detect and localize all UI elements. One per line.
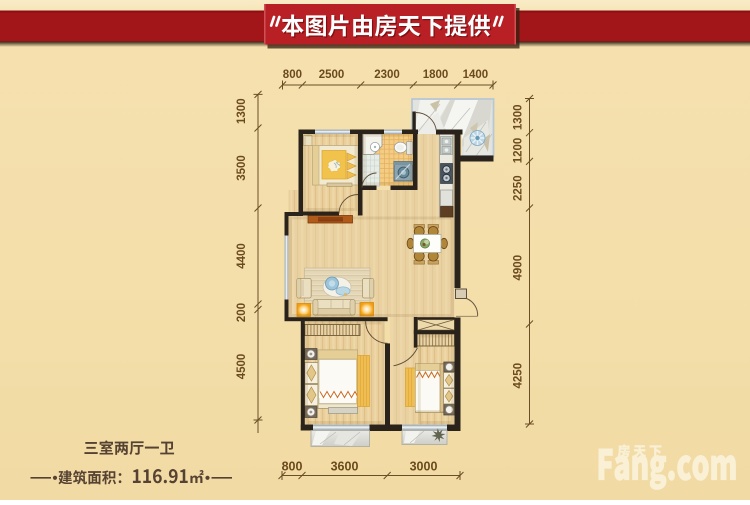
svg-text:1300: 1300	[236, 98, 248, 124]
svg-text:2500: 2500	[319, 69, 345, 81]
svg-text:2250: 2250	[513, 175, 525, 201]
svg-text:3500: 3500	[236, 155, 248, 181]
svg-text:4500: 4500	[236, 354, 248, 380]
svg-text:4900: 4900	[513, 255, 525, 281]
svg-text:4250: 4250	[513, 363, 525, 389]
svg-text:4400: 4400	[236, 243, 248, 269]
svg-text:2300: 2300	[374, 69, 400, 81]
svg-text:800: 800	[282, 460, 303, 474]
svg-text:3600: 3600	[331, 460, 359, 474]
svg-text:200: 200	[236, 303, 248, 322]
svg-text:3000: 3000	[410, 460, 438, 474]
svg-text:1400: 1400	[463, 69, 489, 81]
svg-text:1300: 1300	[513, 105, 525, 131]
svg-text:800: 800	[283, 69, 302, 81]
svg-text:1200: 1200	[513, 138, 525, 164]
svg-text:1800: 1800	[423, 69, 449, 81]
